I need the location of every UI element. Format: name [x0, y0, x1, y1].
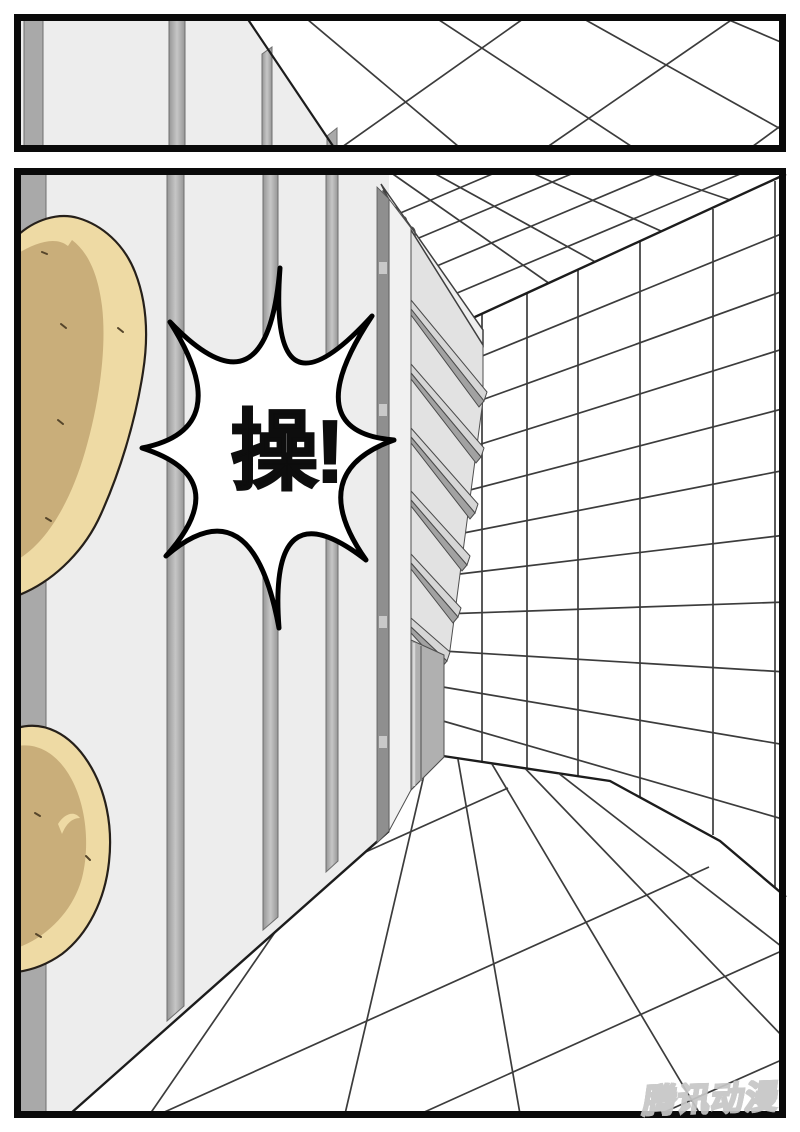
- shelf-column: [411, 640, 444, 790]
- speech-burst-text: 操!: [230, 402, 341, 501]
- edge-strip-notch: [379, 404, 387, 416]
- top-panel-grid: [301, 14, 790, 152]
- comic-page: 操! 腾讯动漫: [0, 0, 800, 1132]
- top-wall-strip: [262, 47, 272, 149]
- shelf-face: [389, 199, 411, 831]
- panel-bottom: 操!: [17, 172, 790, 1115]
- edge-strip-notch: [379, 616, 387, 628]
- edge-strip-notch: [379, 262, 387, 274]
- top-wall-strip: [24, 17, 43, 149]
- comic-page-svg: 操!: [0, 0, 800, 1132]
- wall-strip: [167, 172, 184, 1021]
- tile-wall: [440, 174, 786, 897]
- tile-wall-surface: [440, 174, 786, 897]
- edge-strip-notch: [379, 736, 387, 748]
- top-wall-strip: [169, 17, 185, 149]
- panel-top: [17, 14, 790, 152]
- top-panel-wall: [17, 17, 337, 149]
